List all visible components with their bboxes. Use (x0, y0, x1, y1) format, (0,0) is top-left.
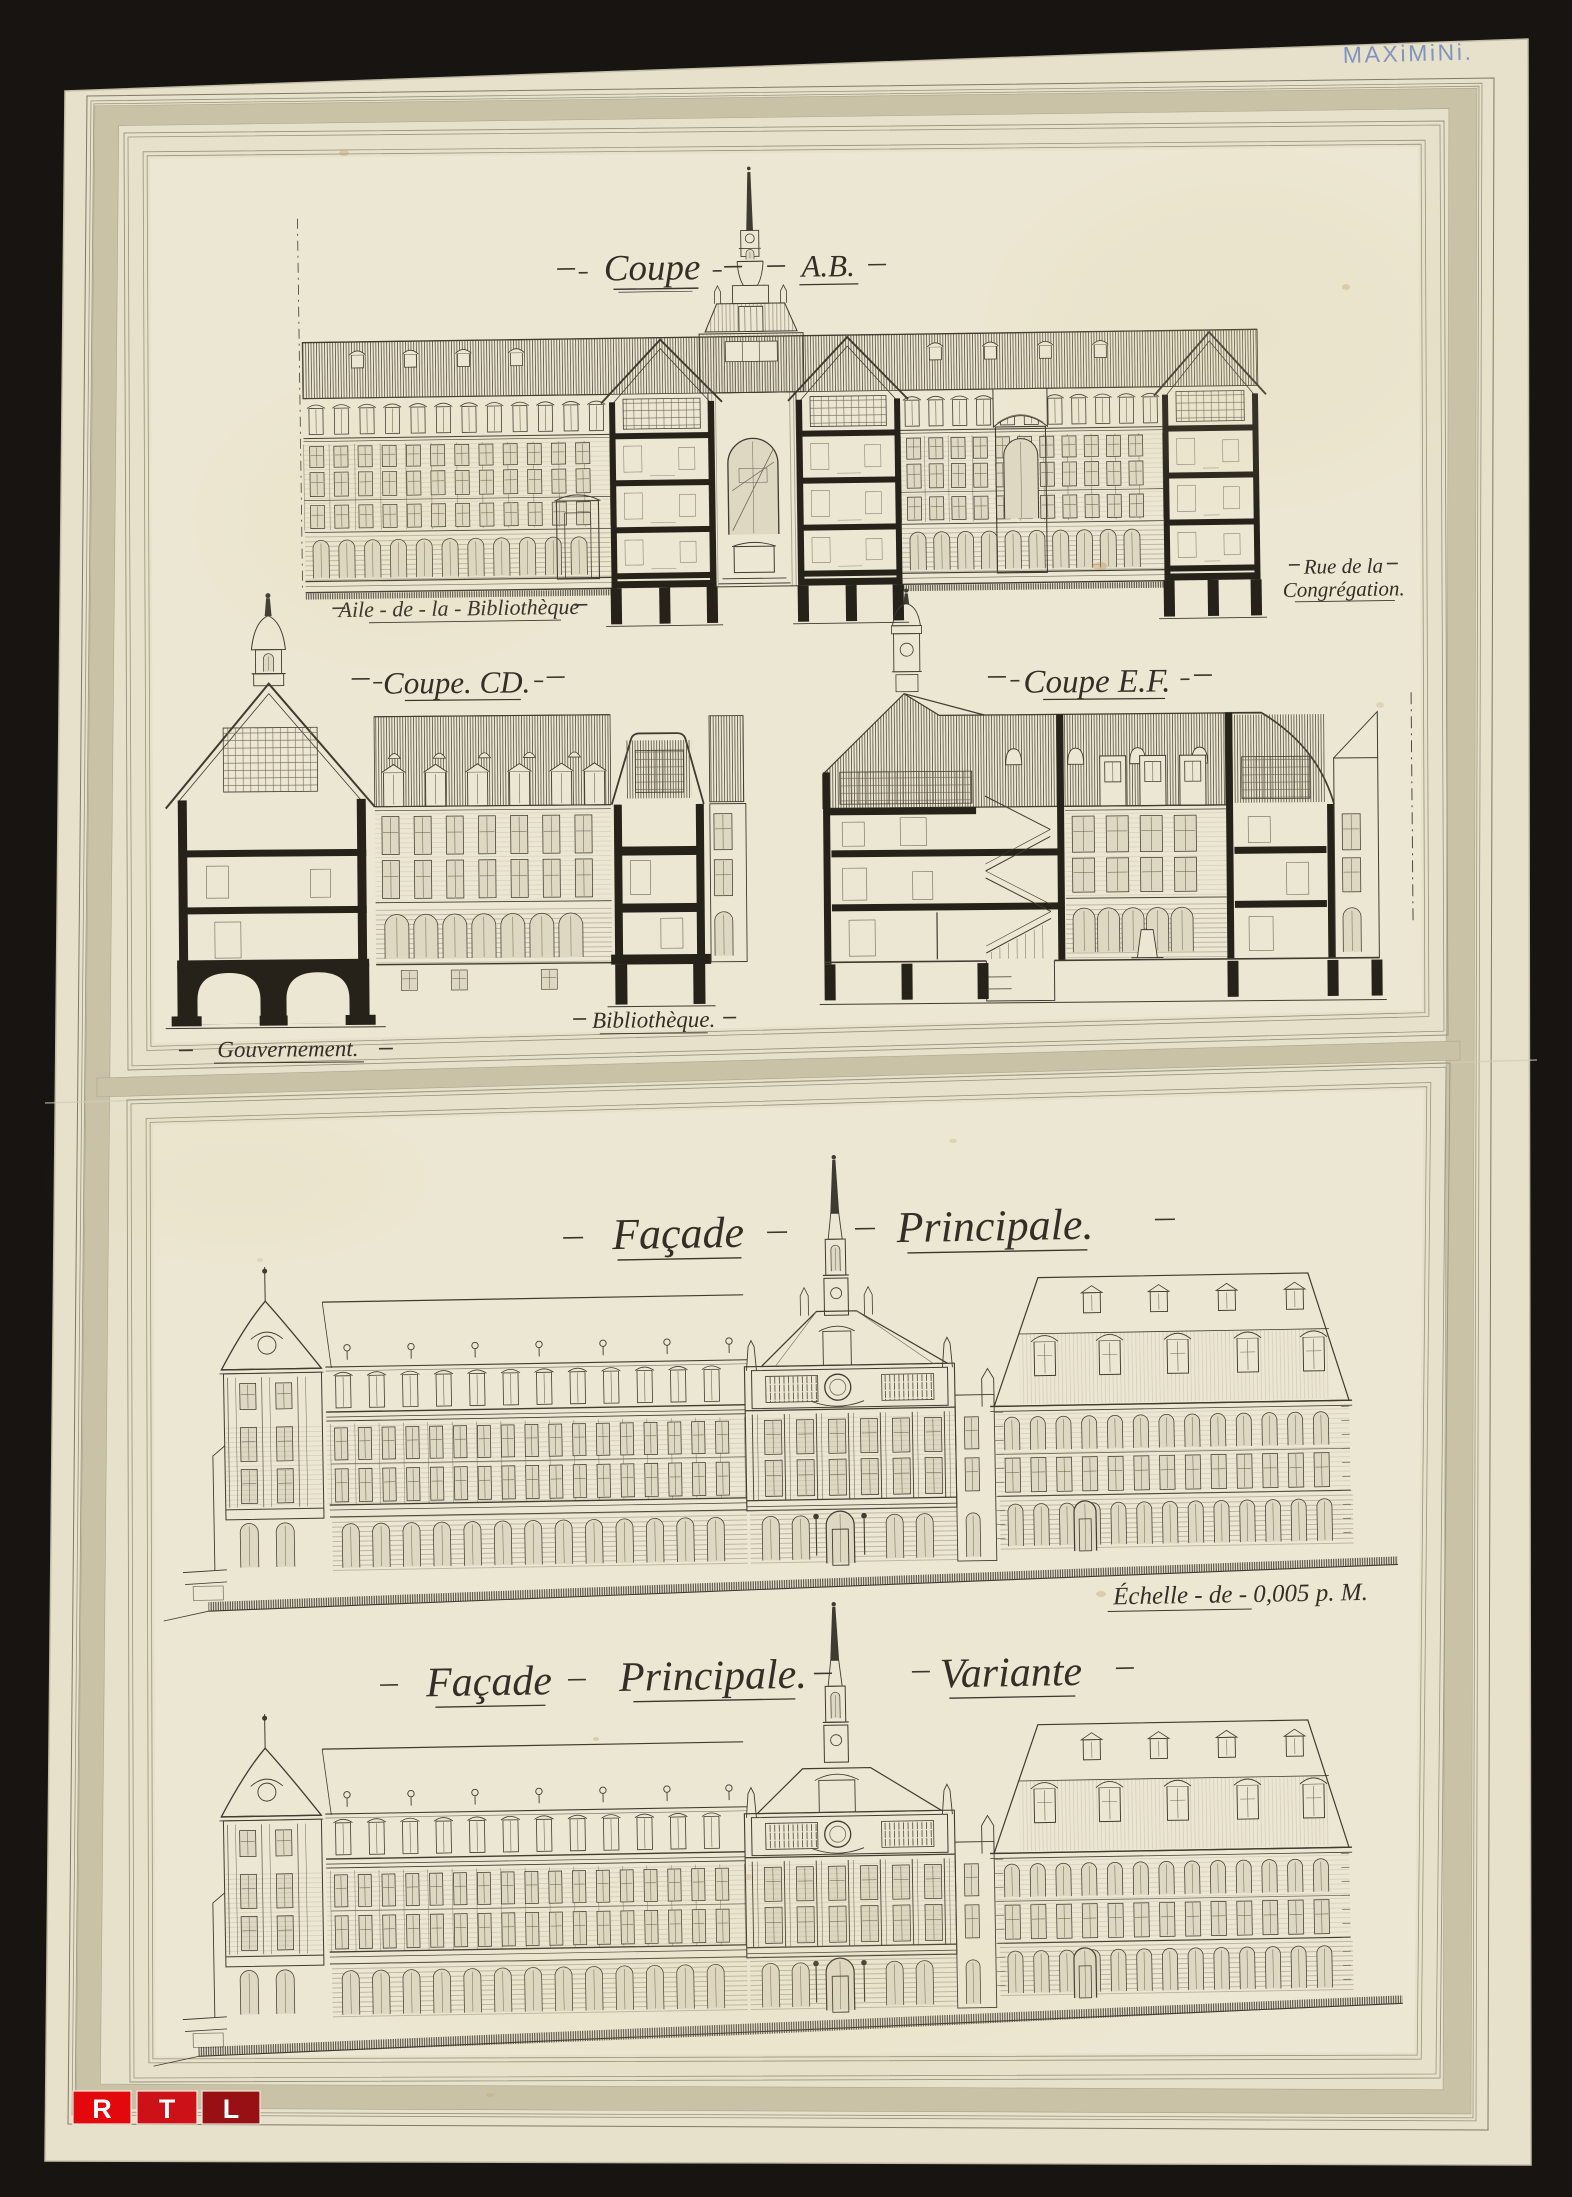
svg-text:Rue de la: Rue de la (1303, 554, 1384, 579)
svg-text:Principale.: Principale. (895, 1200, 1094, 1252)
svg-text:A.B.: A.B. (799, 248, 855, 284)
svg-text:Congrégation.: Congrégation. (1283, 576, 1405, 602)
svg-text:Façade: Façade (611, 1208, 745, 1259)
svg-text:Variante: Variante (939, 1649, 1082, 1697)
svg-text:Façade: Façade (425, 1658, 553, 1706)
svg-text:T: T (159, 2094, 176, 2124)
svg-text:Coupe E.F.: Coupe E.F. (1023, 663, 1170, 700)
svg-text:Bibliothèque.: Bibliothèque. (592, 1007, 715, 1033)
svg-text:L: L (223, 2094, 240, 2124)
svg-text:Principale.: Principale. (618, 1652, 808, 1701)
svg-text:Gouvernement.: Gouvernement. (217, 1036, 358, 1062)
svg-text:Coupe: Coupe (604, 247, 701, 289)
svg-text:Échelle - de - 0,005 p. M.: Échelle - de - 0,005 p. M. (1112, 1578, 1368, 1610)
svg-text:R: R (92, 2094, 112, 2124)
svg-text:MAXiMiNi.: MAXiMiNi. (1342, 39, 1473, 68)
